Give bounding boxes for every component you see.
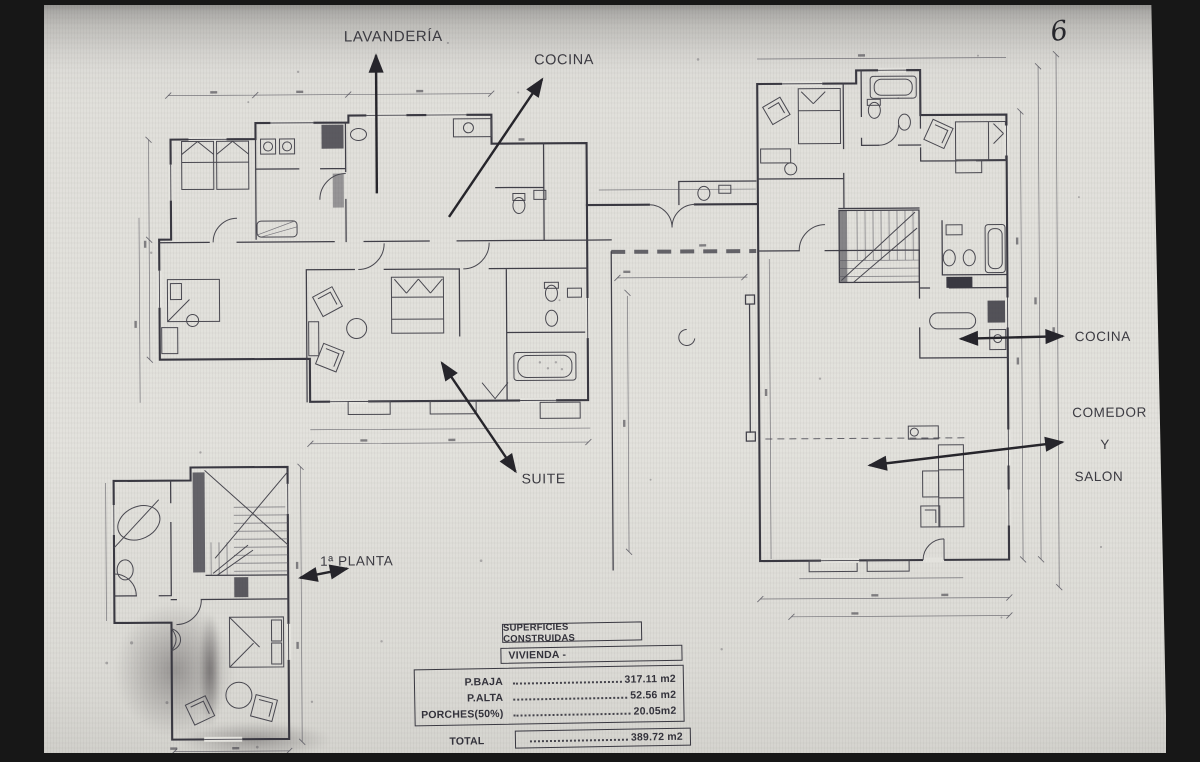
- table-rows: P.BAJA 317.11 m2 P.ALTA 52.56 m2 PORCHES…: [414, 665, 685, 727]
- photo-edge-bottom: [0, 753, 1200, 762]
- photo-edge-top: [0, 0, 1200, 5]
- total-value: 389.72 m2: [631, 731, 683, 744]
- handwritten-page-number: 6: [1048, 15, 1070, 48]
- comedor-label: COMEDOR: [1072, 405, 1147, 420]
- table-title: SUPERFICIES CONSTRUIDAS: [502, 621, 642, 642]
- row-label: PORCHES(50%): [417, 708, 503, 721]
- total-value-box: 389.72 m2: [515, 728, 691, 749]
- row-value: 52.56 m2: [630, 689, 676, 702]
- dotted-leader: [530, 739, 628, 743]
- dotted-leader: [513, 681, 622, 685]
- primera-planta-label: 1ª PLANTA: [320, 553, 393, 568]
- total-label: TOTAL: [431, 735, 503, 750]
- dotted-leader: [513, 697, 627, 701]
- row-label: P.ALTA: [417, 692, 503, 705]
- patio-corridor-plan: [587, 181, 771, 570]
- surface-areas-table: SUPERFICIES CONSTRUIDAS VIVIENDA - P.BAJ…: [413, 621, 691, 751]
- cocina-right-arrow: [961, 336, 1063, 339]
- cocina-top-label: COCINA: [534, 52, 594, 68]
- row-value: 20.05m2: [634, 705, 677, 718]
- suite-label: SUITE: [522, 470, 566, 486]
- row-value: 317.11 m2: [624, 673, 676, 686]
- photographed-floor-plan: LAVANDERÍA COCINA SUITE 1ª PLANTA COCINA…: [0, 0, 1200, 762]
- photo-edge-left: [0, 0, 44, 762]
- right-wing-plan: [757, 70, 1009, 580]
- cocina-top-arrow: [448, 79, 543, 217]
- left-wing-plan: [158, 114, 590, 431]
- table-subtitle: VIVIENDA -: [500, 645, 682, 664]
- annotations: LAVANDERÍA COCINA SUITE 1ª PLANTA COCINA…: [297, 15, 1148, 578]
- primera-planta-arrow: [300, 569, 347, 578]
- row-label: P.BAJA: [417, 676, 503, 689]
- cocina-right-label: COCINA: [1075, 329, 1131, 344]
- dotted-leader: [514, 713, 631, 717]
- first-floor-plan: [112, 467, 289, 740]
- salon-label: SALON: [1075, 469, 1124, 484]
- suite-arrow: [442, 363, 516, 472]
- comedor-y-label: Y: [1100, 437, 1110, 452]
- lavanderia-arrow: [376, 55, 377, 193]
- lavanderia-label: LAVANDERÍA: [344, 28, 443, 46]
- comedor-salon-arrow: [869, 442, 1062, 465]
